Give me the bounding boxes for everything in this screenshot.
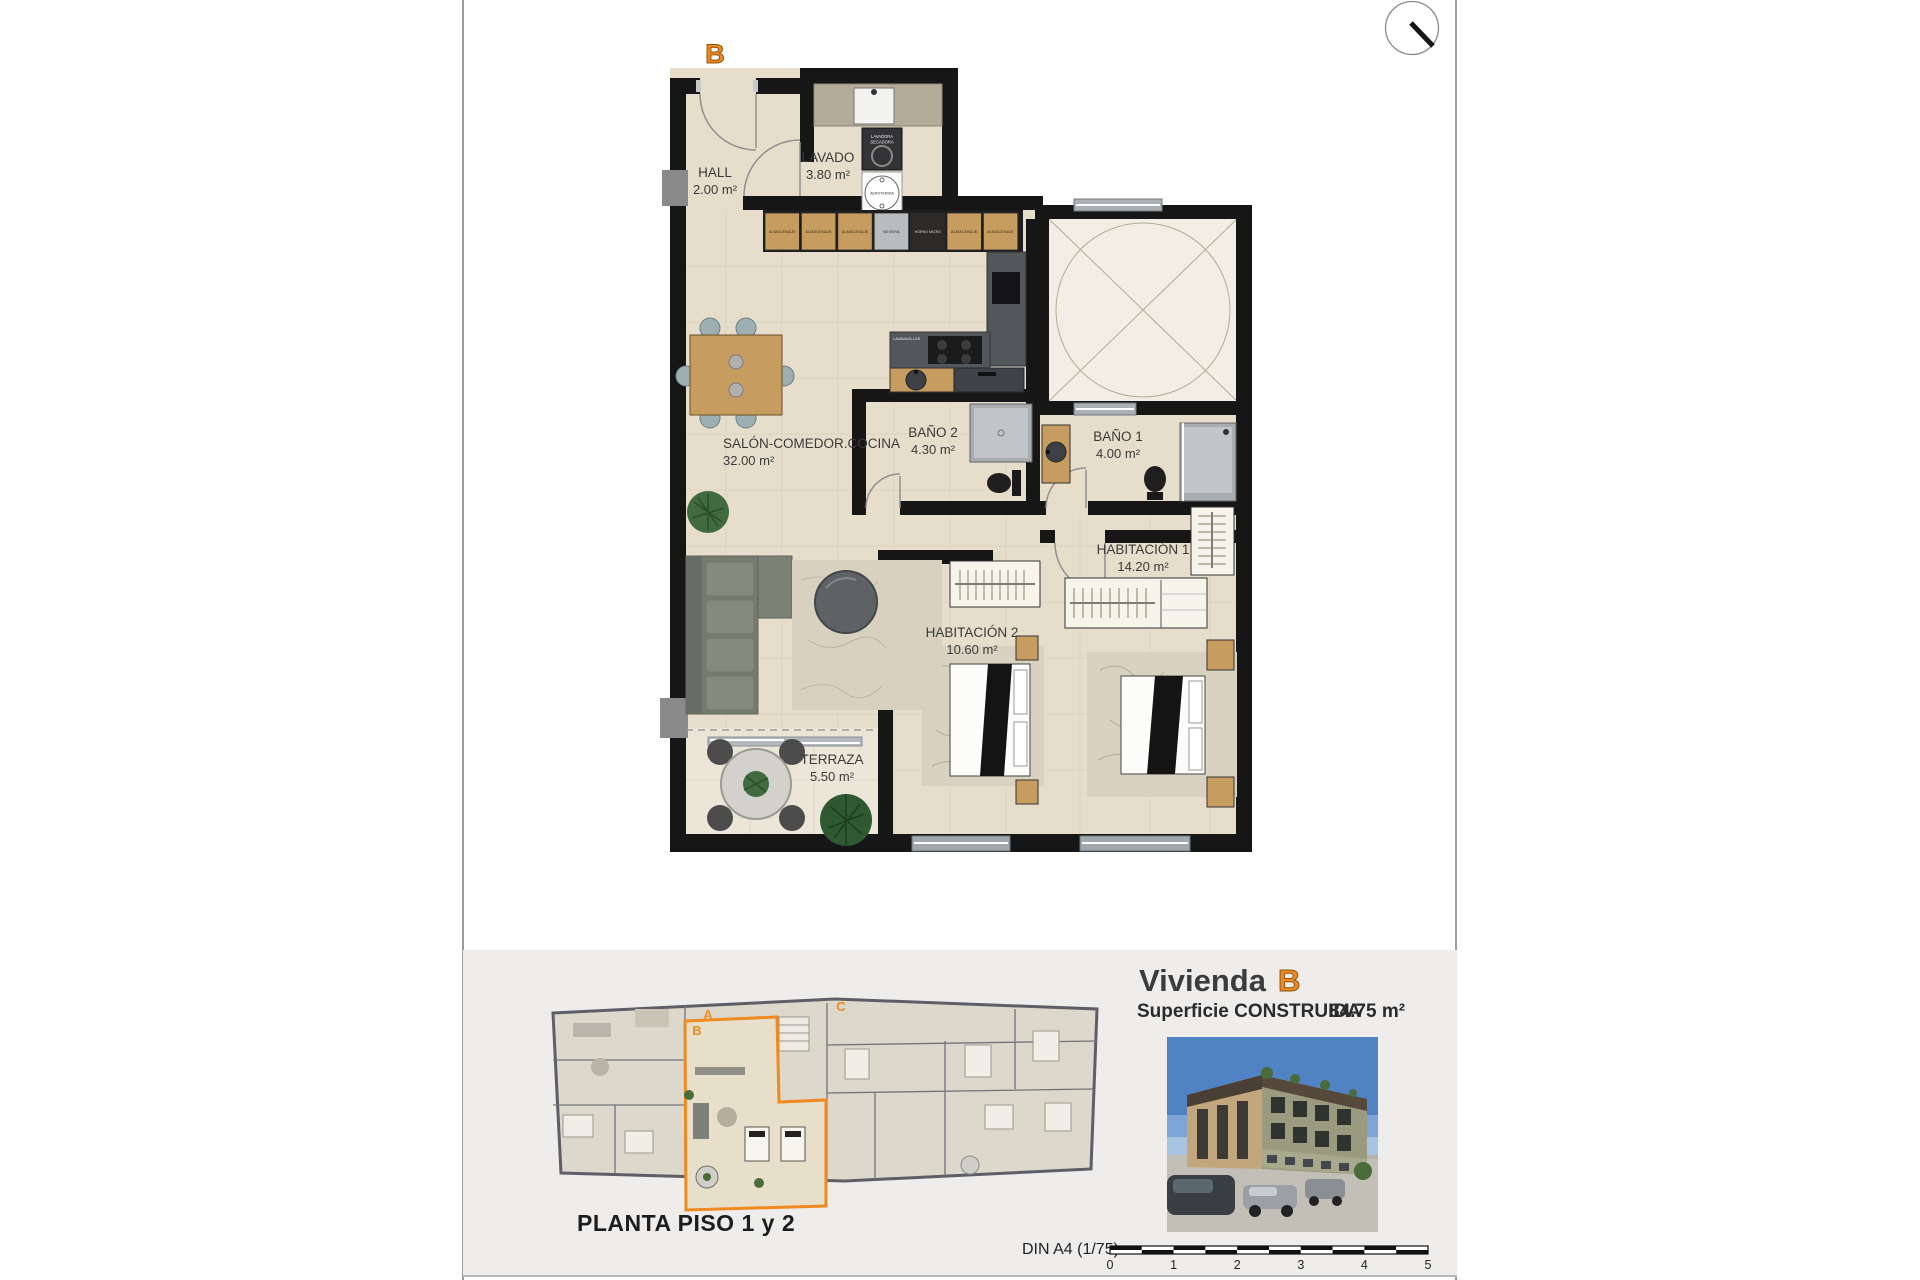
aerothermal-label: AEROTERMIA <box>870 192 894 196</box>
cabinet-label: ALMACENAJE <box>987 229 1014 234</box>
sheet-canvas: LAVADORA SECADORA AEROTERMIA ALMACENAJE … <box>0 0 1920 1280</box>
unit-letter-label: B <box>705 40 725 69</box>
scale-tick: 1 <box>1170 1258 1177 1272</box>
room-area-lavado: 3.80 m² <box>806 167 851 182</box>
room-label-hab1: HABITACIÓN 1 <box>1097 542 1190 557</box>
room-label-salon: SALÓN-COMEDOR.COCINA <box>723 436 900 451</box>
room-area-hab1: 14.20 m² <box>1117 559 1169 574</box>
dwelling-word: Vivienda <box>1139 963 1266 998</box>
sheet-scale-label: DIN A4 (1/75) <box>1022 1241 1119 1259</box>
kitchen-cabinets: ALMACENAJE ALMACENAJE ALMACENAJE NEVERA … <box>763 210 1023 252</box>
scale-bar: 0 1 2 3 4 5 <box>1106 1238 1438 1274</box>
surface-value: 84.75 m² <box>1329 1001 1405 1023</box>
room-area-terraza: 5.50 m² <box>810 769 855 784</box>
room-label-lavado: LAVADO <box>802 150 855 165</box>
room-label-bano2: BAÑO 2 <box>908 425 958 440</box>
room-area-bano2: 4.30 m² <box>911 442 956 457</box>
room-area-hab2: 10.60 m² <box>946 642 998 657</box>
room-label-hab2: HABITACIÓN 2 <box>926 625 1019 640</box>
scale-ticks: 0 1 2 3 4 5 <box>1107 1258 1432 1272</box>
scale-tick: 2 <box>1234 1258 1241 1272</box>
scale-bar-segments <box>1110 1246 1428 1254</box>
room-area-hall: 2.00 m² <box>693 182 738 197</box>
room-area-salon: 32.00 m² <box>723 453 775 468</box>
site-letter-a: A <box>703 1007 713 1022</box>
dishwasher-label: LAVAVAJILLAS <box>893 336 921 341</box>
cabinet-label: ALMACENAJE <box>805 229 832 234</box>
room-label-terraza: TERRAZA <box>800 752 863 767</box>
scale-tick: 4 <box>1361 1258 1368 1272</box>
scale-tick: 3 <box>1297 1258 1304 1272</box>
cabinet-label: ALMACENAJE <box>769 229 796 234</box>
site-plan: A B C <box>545 975 1105 1215</box>
cabinet-label: ALMACENAJE <box>951 229 978 234</box>
dwelling-letter: B <box>1278 963 1300 998</box>
site-plan-title: PLANTA PISO 1 y 2 <box>577 1210 795 1237</box>
oven-label: HORNO MICRO <box>915 230 942 234</box>
site-letter-c: C <box>836 999 846 1014</box>
floor-plan: LAVADORA SECADORA AEROTERMIA ALMACENAJE … <box>650 40 1270 870</box>
building-photo <box>1167 1037 1378 1232</box>
site-letter-b: B <box>692 1023 701 1038</box>
scale-tick: 0 <box>1107 1258 1114 1272</box>
washer-label-2: SECADORA <box>870 140 894 145</box>
cabinet-label: ALMACENAJE <box>842 229 869 234</box>
washer-label-1: LAVADORA <box>871 134 893 139</box>
scale-tick: 5 <box>1425 1258 1432 1272</box>
room-label-hall: HALL <box>698 165 732 180</box>
orientation-indicator-icon <box>1380 0 1444 60</box>
fridge-label: NEVERA <box>883 229 900 234</box>
surface-label: Superficie CONSTRUIDA <box>1137 1001 1361 1023</box>
room-label-bano1: BAÑO 1 <box>1093 429 1143 444</box>
dwelling-heading: ViviendaB <box>1139 963 1300 999</box>
room-area-bano1: 4.00 m² <box>1096 446 1141 461</box>
